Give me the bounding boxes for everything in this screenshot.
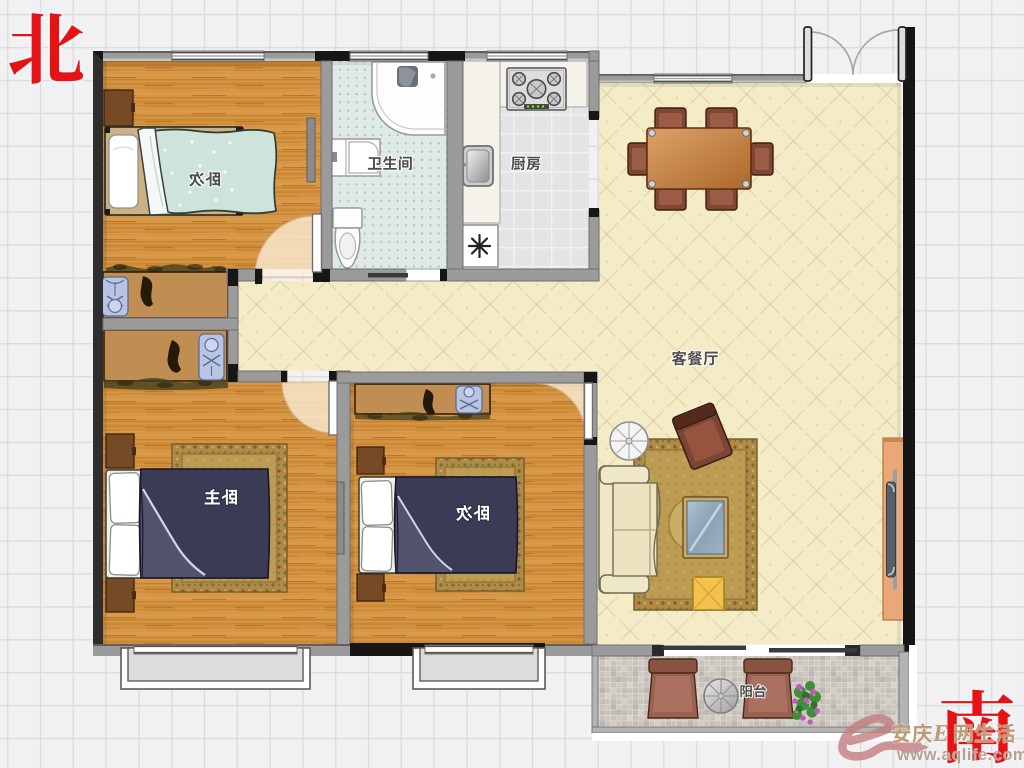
svg-text:www.aqlife.com: www.aqlife.com <box>896 746 1024 764</box>
svg-text:E: E <box>932 721 949 747</box>
